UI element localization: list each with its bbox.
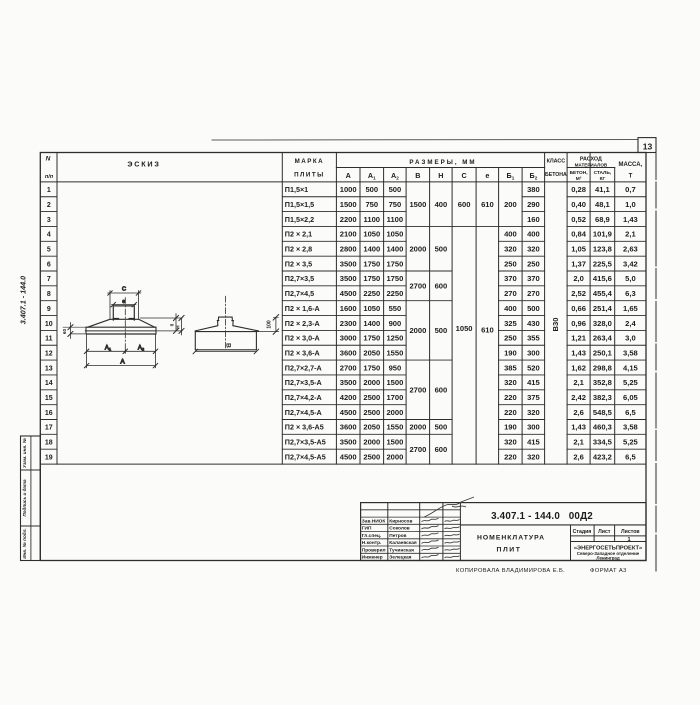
svg-text:3: 3 [47,217,51,224]
svg-text:2500: 2500 [363,452,380,461]
svg-text:2,63: 2,63 [623,245,638,254]
svg-text:328,0: 328,0 [593,319,612,328]
svg-text:1100: 1100 [387,215,403,224]
svg-text:0,84: 0,84 [571,230,587,239]
svg-text:БЕТОН,: БЕТОН, [570,170,589,176]
svg-text:220: 220 [504,393,517,402]
svg-text:3500: 3500 [340,259,357,268]
svg-text:А2: А2 [391,171,399,181]
svg-text:1600: 1600 [340,304,357,313]
svg-text:1,62: 1,62 [571,363,586,372]
svg-text:КГ: КГ [600,176,606,182]
svg-text:600: 600 [435,445,448,454]
svg-text:334,5: 334,5 [593,438,613,447]
svg-text:400: 400 [435,200,448,209]
svg-text:750: 750 [389,200,402,209]
svg-text:6,3: 6,3 [625,289,636,298]
svg-text:3,58: 3,58 [623,423,638,432]
svg-text:400: 400 [504,304,517,313]
svg-text:355: 355 [527,334,540,343]
svg-text:2,1: 2,1 [573,378,584,387]
svg-text:1500: 1500 [386,438,403,447]
svg-text:320: 320 [504,378,517,387]
svg-text:3000: 3000 [340,334,357,343]
svg-text:6: 6 [47,261,51,268]
svg-text:4500: 4500 [340,408,357,417]
svg-text:2000: 2000 [363,378,380,387]
svg-text:4500: 4500 [340,452,357,461]
svg-text:С: С [461,171,466,180]
svg-text:352,8: 352,8 [593,378,612,387]
svg-text:370: 370 [527,274,540,283]
svg-text:ПЛИТ: ПЛИТ [496,547,521,554]
svg-text:Соколов: Соколов [389,526,409,532]
svg-text:7: 7 [47,276,51,283]
svg-text:П1,5×2,2: П1,5×2,2 [285,215,314,224]
svg-text:220: 220 [504,408,517,417]
svg-text:2500: 2500 [363,408,380,417]
svg-text:А: А [346,171,351,180]
svg-text:1750: 1750 [363,334,380,343]
svg-text:160: 160 [527,215,540,224]
svg-text:320: 320 [504,438,517,447]
svg-text:455,4: 455,4 [593,289,613,298]
svg-text:5,25: 5,25 [623,438,639,447]
svg-text:460,3: 460,3 [593,423,612,432]
svg-text:6,5: 6,5 [625,408,636,417]
svg-text:2250: 2250 [363,289,380,298]
svg-text:250: 250 [504,334,517,343]
svg-text:14: 14 [45,380,53,387]
svg-text:400: 400 [527,230,540,239]
svg-text:Лист: Лист [598,529,611,535]
svg-text:5,25: 5,25 [623,378,639,387]
svg-text:ФОРМАТ А3: ФОРМАТ А3 [590,568,627,574]
svg-text:0,28: 0,28 [571,185,586,194]
svg-text:3.407.1 - 144.0: 3.407.1 - 144.0 [19,276,28,324]
svg-text:2,1: 2,1 [625,230,636,239]
svg-text:П2 × 1,6-А: П2 × 1,6-А [285,304,320,313]
svg-text:Калаевская: Калаевская [389,540,417,546]
svg-text:251,4: 251,4 [593,304,613,313]
svg-text:4,15: 4,15 [623,363,639,372]
svg-text:415: 415 [527,378,540,387]
svg-text:1: 1 [47,187,51,194]
svg-text:750: 750 [365,200,378,209]
svg-text:100: 100 [267,320,273,329]
svg-text:3600: 3600 [340,423,357,432]
svg-text:1050: 1050 [363,304,380,313]
svg-text:2000: 2000 [386,452,403,461]
svg-text:4500: 4500 [340,289,357,298]
svg-text:е: е [485,171,489,180]
svg-text:3500: 3500 [340,274,357,283]
svg-text:1100: 1100 [364,215,380,224]
svg-text:П2 × 2,3-А: П2 × 2,3-А [285,319,320,328]
svg-text:3.407.1 - 144.0 00Д2: 3.407.1 - 144.0 00Д2 [491,511,593,522]
svg-text:6,5: 6,5 [625,452,636,461]
svg-text:1,65: 1,65 [623,304,639,313]
svg-text:Б2: Б2 [530,171,538,181]
svg-text:3,42: 3,42 [623,259,638,268]
svg-text:200: 200 [504,200,517,209]
svg-text:2700: 2700 [409,445,426,454]
svg-text:2050: 2050 [363,349,380,358]
svg-text:Тучинская: Тучинская [389,547,414,553]
svg-text:2500: 2500 [363,393,380,402]
svg-text:1050: 1050 [456,324,473,333]
svg-text:Петров: Петров [389,533,406,539]
svg-text:415,6: 415,6 [593,274,612,283]
svg-text:1400: 1400 [363,245,380,254]
svg-text:П2,7×3,5-А5: П2,7×3,5-А5 [285,438,326,447]
svg-text:5,0: 5,0 [625,274,636,283]
svg-text:2200: 2200 [340,215,357,224]
svg-text:500: 500 [389,185,402,194]
svg-text:2: 2 [47,202,51,209]
svg-text:1: 1 [627,537,630,543]
svg-text:415: 415 [527,438,540,447]
svg-text:1,21: 1,21 [571,334,587,343]
svg-text:380: 380 [527,185,540,194]
svg-text:190: 190 [504,423,517,432]
svg-text:П2 × 2,8: П2 × 2,8 [285,245,312,254]
svg-text:1,43: 1,43 [623,215,638,224]
svg-text:П2,7×3,5-А: П2,7×3,5-А [285,378,322,387]
svg-text:Т: Т [629,174,633,180]
svg-text:190: 190 [504,349,517,358]
svg-text:1750: 1750 [386,259,403,268]
svg-text:500: 500 [365,185,378,194]
svg-text:1500: 1500 [386,378,403,387]
svg-text:С: С [122,287,126,293]
svg-text:500: 500 [435,245,448,254]
svg-text:1250: 1250 [386,334,403,343]
svg-text:101,9: 101,9 [593,230,612,239]
svg-text:Листов: Листов [621,529,640,535]
svg-text:п/п: п/п [45,174,54,180]
svg-text:2050: 2050 [363,423,380,432]
svg-text:385: 385 [504,363,517,372]
svg-text:П2,7×4,5-А: П2,7×4,5-А [285,408,322,417]
svg-text:600: 600 [435,386,448,395]
svg-text:19: 19 [45,454,53,461]
svg-text:500: 500 [435,326,448,335]
svg-text:4: 4 [47,232,51,239]
svg-text:1,37: 1,37 [571,259,586,268]
svg-text:250: 250 [504,259,517,268]
svg-text:68,9: 68,9 [595,215,610,224]
svg-text:270: 270 [527,289,540,298]
svg-text:П2 × 3,0-А: П2 × 3,0-А [285,334,320,343]
svg-text:225,5: 225,5 [593,259,613,268]
svg-text:е: е [122,299,125,305]
svg-text:0,7: 0,7 [625,185,636,194]
svg-text:298,8: 298,8 [593,363,612,372]
svg-text:600: 600 [458,200,471,209]
svg-text:12: 12 [45,351,53,358]
svg-text:2000: 2000 [386,408,403,417]
svg-text:П2 × 2,1: П2 × 2,1 [285,230,312,239]
svg-text:б: б [169,323,174,326]
svg-text:430: 430 [527,319,540,328]
svg-text:11: 11 [45,336,53,343]
svg-text:13: 13 [45,365,53,372]
svg-text:2,6: 2,6 [573,408,584,417]
svg-text:Инженер: Инженер [362,555,383,561]
svg-text:2700: 2700 [340,363,357,372]
svg-text:41,1: 41,1 [595,185,611,194]
svg-text:2,6: 2,6 [573,452,584,461]
svg-text:1750: 1750 [386,274,403,283]
svg-text:5: 5 [47,247,51,254]
svg-text:370: 370 [504,274,517,283]
svg-text:250,1: 250,1 [593,349,613,358]
svg-text:2300: 2300 [340,319,357,328]
svg-text:320: 320 [527,408,540,417]
svg-text:950: 950 [389,363,402,372]
svg-text:П2,7×4,2-А: П2,7×4,2-А [285,393,322,402]
svg-text:0,40: 0,40 [571,200,586,209]
svg-text:N: N [46,156,51,163]
svg-text:2250: 2250 [386,289,403,298]
svg-text:2,0: 2,0 [573,274,584,283]
svg-text:Н: Н [438,171,443,180]
svg-text:2,52: 2,52 [571,289,586,298]
svg-text:1,43: 1,43 [571,349,586,358]
svg-text:МАССА,: МАССА, [619,162,643,168]
svg-text:П2,7×3,5: П2,7×3,5 [285,274,314,283]
svg-text:2700: 2700 [409,386,426,395]
svg-text:382,3: 382,3 [593,393,612,402]
svg-text:1,05: 1,05 [571,245,587,254]
svg-text:МАТЕРИАЛОВ: МАТЕРИАЛОВ [575,162,608,167]
svg-text:263,4: 263,4 [593,334,613,343]
svg-text:Б1: Б1 [507,171,515,181]
svg-text:500: 500 [527,304,540,313]
svg-text:250: 250 [527,259,540,268]
svg-text:А2: А2 [138,345,145,351]
svg-text:1550: 1550 [386,423,403,432]
svg-text:1550: 1550 [386,349,403,358]
svg-text:1050: 1050 [386,230,403,239]
svg-text:423,2: 423,2 [593,452,612,461]
svg-text:0,66: 0,66 [571,304,586,313]
svg-text:П1,5×1,5: П1,5×1,5 [285,200,314,209]
svg-text:2100: 2100 [340,230,357,239]
svg-text:300: 300 [527,423,540,432]
svg-text:П1,5×1: П1,5×1 [285,185,308,194]
svg-text:ЭСКИЗ: ЭСКИЗ [127,160,160,169]
svg-text:2,42: 2,42 [571,393,586,402]
svg-text:6,05: 6,05 [623,393,639,402]
svg-text:РАЗМЕРЫ, ММ: РАЗМЕРЫ, ММ [409,159,476,166]
svg-text:1000: 1000 [340,185,357,194]
svg-text:610: 610 [481,326,494,335]
svg-text:548,5: 548,5 [593,408,613,417]
svg-text:3500: 3500 [340,438,357,447]
svg-text:ГИП: ГИП [362,526,372,532]
svg-text:КОПИРОВАЛА ВЛАДИМИРОВА Е.Б.: КОПИРОВАЛА ВЛАДИМИРОВА Е.Б. [456,568,565,574]
svg-text:П2,7×2,7-А: П2,7×2,7-А [285,363,322,372]
svg-text:9: 9 [47,306,51,313]
svg-text:3,0: 3,0 [625,334,636,343]
svg-text:60: 60 [62,329,67,335]
svg-text:П2,7×4,5-А5: П2,7×4,5-А5 [285,452,326,461]
svg-text:ПЛИТЫ: ПЛИТЫ [294,172,325,179]
svg-text:П2 × 3,6-А5: П2 × 3,6-А5 [285,423,324,432]
svg-text:1700: 1700 [386,393,403,402]
svg-text:НОМЕНКЛАТУРА: НОМЕНКЛАТУРА [477,535,545,542]
svg-text:1750: 1750 [363,363,380,372]
svg-text:290: 290 [527,200,540,209]
svg-text:1400: 1400 [363,319,380,328]
svg-text:В30: В30 [551,318,560,332]
svg-text:610: 610 [481,200,494,209]
svg-text:3,58: 3,58 [623,349,638,358]
svg-text:В: В [415,171,420,180]
svg-text:400: 400 [504,230,517,239]
svg-text:БЕТОНА: БЕТОНА [545,172,567,178]
svg-text:2,1: 2,1 [573,438,584,447]
svg-text:550: 550 [389,304,402,313]
svg-text:15: 15 [45,395,53,402]
svg-text:Гл.спец.: Гл.спец. [362,533,381,539]
svg-text:520: 520 [527,363,540,372]
svg-text:123,8: 123,8 [593,245,612,254]
svg-text:1500: 1500 [340,200,357,209]
svg-text:МАРКА: МАРКА [295,158,325,165]
svg-text:1750: 1750 [363,259,380,268]
svg-text:900: 900 [389,319,402,328]
svg-text:1750: 1750 [363,274,380,283]
svg-text:2,4: 2,4 [625,319,636,328]
svg-text:600: 600 [435,282,448,291]
svg-text:500: 500 [435,423,448,432]
svg-text:П2 × 3,6-А: П2 × 3,6-А [285,349,320,358]
svg-text:Зав.НИОК: Зав.НИОК [362,519,386,525]
svg-text:СТАЛЬ,: СТАЛЬ, [594,170,612,176]
svg-text:2000: 2000 [363,438,380,447]
svg-text:325: 325 [504,319,517,328]
svg-text:3600: 3600 [340,349,357,358]
svg-text:Кирносов: Кирносов [389,519,412,525]
svg-text:1,43: 1,43 [571,423,586,432]
svg-text:П2,7×4,5: П2,7×4,5 [285,289,314,298]
svg-text:Н: Н [176,325,181,328]
svg-text:375: 375 [527,393,540,402]
svg-text:0,96: 0,96 [571,319,586,328]
svg-text:Инв. № подл.: Инв. № подл. [22,528,27,559]
svg-text:Зелецкая: Зелецкая [389,555,411,561]
svg-text:2700: 2700 [409,282,426,291]
svg-text:М³: М³ [576,176,582,182]
svg-text:13: 13 [643,142,653,152]
svg-text:220: 220 [504,452,517,461]
svg-text:320: 320 [504,245,517,254]
svg-text:2000: 2000 [409,245,426,254]
svg-text:П2 × 3,5: П2 × 3,5 [285,259,312,268]
svg-text:0,52: 0,52 [571,215,586,224]
svg-text:А: А [120,358,125,365]
svg-text:В: В [225,343,232,348]
svg-text:1400: 1400 [386,245,403,254]
svg-text:Подпись и дата: Подпись и дата [22,479,27,517]
svg-text:1,0: 1,0 [625,200,636,209]
svg-text:КЛАСС: КЛАСС [547,159,566,165]
svg-text:А1: А1 [368,171,376,181]
svg-text:4200: 4200 [340,393,357,402]
svg-text:300: 300 [527,349,540,358]
svg-text:48,1: 48,1 [595,200,611,209]
svg-text:1500: 1500 [409,200,426,209]
svg-text:Проверил: Проверил [362,547,386,553]
svg-text:10: 10 [45,321,53,328]
svg-text:1050: 1050 [363,230,380,239]
svg-text:320: 320 [527,452,540,461]
svg-text:3500: 3500 [340,378,357,387]
svg-text:2000: 2000 [409,423,426,432]
svg-text:А1: А1 [105,345,112,351]
svg-text:Стадия: Стадия [573,529,592,535]
svg-text:16: 16 [45,410,53,417]
svg-text:2000: 2000 [409,326,426,335]
svg-text:2800: 2800 [340,245,357,254]
svg-text:Узам. инв. №: Узам. инв. № [22,437,27,468]
svg-text:320: 320 [527,245,540,254]
svg-text:Н.контр.: Н.контр. [362,540,382,546]
svg-text:Ленинград: Ленинград [596,555,619,560]
svg-text:18: 18 [45,440,53,447]
svg-text:8: 8 [47,291,51,298]
svg-text:270: 270 [504,289,517,298]
svg-text:17: 17 [45,425,53,432]
